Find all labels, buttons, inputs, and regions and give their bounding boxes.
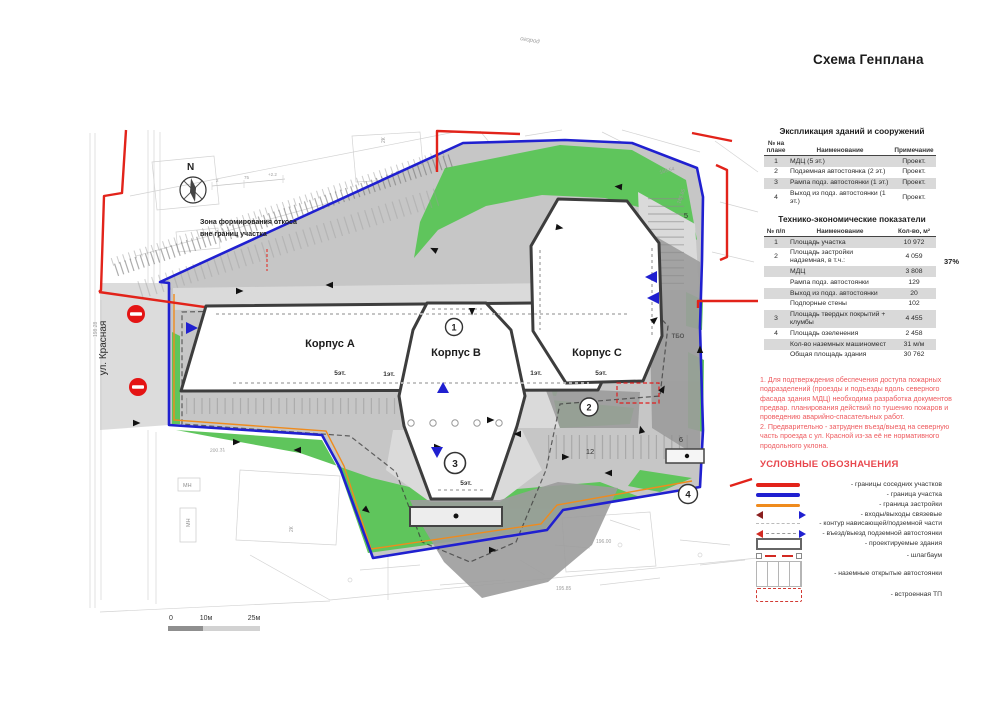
cell-qty: 20 [892,288,936,299]
cell-name: Выход из подз. автостоянки [788,288,892,299]
legend-row: - шлагбаум [756,551,942,560]
garage-entry-icon [756,530,763,538]
cell-note: Проект. [892,178,936,189]
note-2: 2. Предварительно - затруднен въезд/выез… [760,423,966,451]
table-row: 3 Рампа подз. автостоянки (1 эт.) Проект… [764,178,936,189]
survey-label: 198.28 [93,321,99,337]
legend-row: - встроенная ТП [756,588,942,601]
cell-num: 3 [764,178,788,189]
tbo-label: ТБО [672,334,685,340]
cell-num [764,266,788,277]
survey-label: огород [520,36,541,45]
legend-label: - шлагбаум [806,552,942,559]
cell-num: 4 [764,189,788,208]
cell-num: 2 [764,248,788,267]
legend-row: - проектируемые здания [756,538,942,550]
neighbour-boundary-swatch [756,483,800,487]
building-b-label: Корпус B [431,347,481,359]
cell-num [764,288,788,299]
area-number-5: 5 [684,211,688,220]
survey-label: 2К [381,137,387,143]
cell-num: 4 [764,328,788,339]
cell-qty: 30 762 [892,350,936,361]
entry-arrow-icon [799,511,806,519]
legend-label: - въезд/выезд подземной автостоянки [806,530,942,537]
page-title: Схема Генплана [813,52,924,67]
floors-label: 5эт. [460,480,472,487]
legend-row: - границы соседних участков [756,481,942,489]
no-entry-icon [129,378,147,396]
cell-note: Проект. [892,156,936,167]
legend-label: - контур нависающей/подземной части [806,520,942,527]
table-row: 1 МДЦ (5 эт.) Проект. [764,156,936,167]
legend-row: - въезд/выезд подземной автостоянки [756,529,942,538]
no-entry-icon [127,305,145,323]
build-boundary-swatch [756,504,800,507]
tp-swatch [756,588,802,602]
legend-row: - граница участка [756,491,942,499]
cell-qty: 4 059 [892,248,936,267]
cell-num: 2 [764,167,788,178]
table-row: 1 Площадь участка 10 972 [764,237,936,248]
survey-label: 195.85 [556,586,572,592]
legend-label: - проектируемые здания [806,540,942,547]
cell-name: МДЦ [788,266,892,277]
table-row: Подпорные стены 102 [764,299,936,310]
cell-num [764,339,788,350]
projected-building-swatch [756,538,802,550]
genplan-sheet: N Корпус A Корпус B Корпус C 5эт. 1эт. 1… [0,0,1000,707]
cell-qty: 129 [892,277,936,288]
cell-name: МДЦ (5 эт.) [788,156,892,167]
indicators-table-block: Технико-экономические показатели № п/п Н… [764,214,940,361]
survey-label: 2К [289,526,295,532]
structure-dot [685,454,689,458]
col-header: № на плане [764,139,788,156]
legend-label: - наземные открытые автостоянки [806,570,942,577]
explication-table: № на плане Наименование Примечание 1 МДЦ… [764,139,936,207]
floors-label: 1эт. [383,371,395,378]
marker-3: 3 [452,459,458,470]
cell-name: Кол-во наземных машиномест [788,339,892,350]
area-number-6: 6 [679,435,683,444]
survey-label: 200.31 [210,447,226,454]
garage-entry-icon [799,530,806,538]
cell-qty: 10 972 [892,237,936,248]
cell-qty: 4 455 [892,310,936,329]
north-compass: N [180,162,206,203]
scale-tick-25: 25м [248,615,261,622]
cell-qty: 2 458 [892,328,936,339]
table-row: 2 Подземная автостоянка (2 эт.) Проект. [764,167,936,178]
indicators-title: Технико-экономические показатели [764,214,940,224]
cell-qty: 3 808 [892,266,936,277]
legend-label: - встроенная ТП [806,591,942,598]
cell-name: Рампа подз. автостоянки (1 эт.) [788,178,892,189]
north-label: N [187,162,194,173]
area-number-12: 12 [586,447,594,456]
floors-label: 5эт. [334,370,346,377]
cell-name: Общая площадь здания [788,350,892,361]
survey-label: МН [186,518,192,527]
col-header: Наименование [788,227,892,237]
entry-arrow-icon [756,511,763,519]
col-header: Наименование [788,139,892,156]
slope-zone-note: Зона формирования откоса [200,219,297,226]
col-header: Примечание [892,139,936,156]
cell-num: 3 [764,310,788,329]
barrier-arm-icon [765,555,776,557]
scale-bar-dark [168,626,203,631]
barrier-post-icon [756,553,762,559]
explication-table-block: Экспликация зданий и сооружений № на пла… [764,126,940,207]
cell-name: Подпорные стены [788,299,892,310]
cell-qty: 102 [892,299,936,310]
cell-name: Площадь участка [788,237,892,248]
table-row: Выход из подз. автостоянки 20 [764,288,936,299]
floors-label: 5эт. [595,370,607,377]
cell-name: Площадь застройки надземная, в т.ч.: [788,248,892,267]
scale-bar: 0 10м 25м [168,615,260,631]
overhang-contour-swatch [756,523,800,524]
scale-bar-light [203,626,260,631]
table-row: 3 Площадь твердых покрытий + клумбы 4 45… [764,310,936,329]
cell-note: Проект. [892,189,936,208]
fire-access-notes: 1. Для подтверждения обеспечения доступа… [760,376,966,451]
cell-name: Рампа подз. автостоянки [788,277,892,288]
indicators-table: № п/п Наименование Кол-во, м² 1 Площадь … [764,227,936,361]
open-parking-swatch [756,561,802,587]
cell-name: Выход из подз. автостоянки (1 эт.) [788,189,892,208]
cell-num: 1 [764,156,788,167]
cell-name: Площадь озеленения [788,328,892,339]
cell-num [764,299,788,310]
building-c-label: Корпус C [572,347,622,359]
scale-tick-0: 0 [169,615,173,622]
table-row: 4 Площадь озеленения 2 458 [764,328,936,339]
legend-label: - границы соседних участков [806,481,942,488]
cell-num: 1 [764,237,788,248]
pavilion-dot [454,514,459,519]
legend-title: УСЛОВНЫЕ ОБОЗНАЧЕНИЯ [760,459,899,470]
legend-row: - контур нависающей/подземной части [756,519,942,528]
barrier-arm-icon [782,555,793,557]
table-row: Кол-во наземных машиномест 31 м/м [764,339,936,350]
marker-2: 2 [586,403,591,413]
table-row: 2 Площадь застройки надземная, в т.ч.: 4… [764,248,936,267]
col-header: № п/п [764,227,788,237]
cell-num [764,350,788,361]
street-label: ул. Красная [98,321,109,376]
cell-name: Площадь твердых покрытий + клумбы [788,310,892,329]
survey-label: 75 [244,175,250,180]
legend-label: - граница участка [806,491,942,498]
built-up-percent: 37% [944,257,959,266]
garage-entry-dash [766,533,796,534]
survey-label: МН [183,483,192,489]
site-boundary-swatch [756,493,800,497]
legend-row: - граница застройки [756,501,942,509]
cell-qty: 31 м/м [892,339,936,350]
table-row: Рампа подз. автостоянки 129 [764,277,936,288]
cell-name: Подземная автостоянка (2 эт.) [788,167,892,178]
table-row: Общая площадь здания 30 762 [764,350,936,361]
street-pavement [100,283,169,430]
slope-zone-note: вне границ участка [200,231,267,238]
floors-label: 1эт. [530,370,542,377]
legend-row: - входы/выходы связевые [756,510,942,519]
note-1: 1. Для подтверждения обеспечения доступа… [760,376,966,423]
scale-tick-10: 10м [200,615,213,622]
building-a-label: Корпус A [305,338,355,350]
legend-row: - наземные открытые автостоянки [756,561,942,587]
cell-note: Проект. [892,167,936,178]
explication-title: Экспликация зданий и сооружений [764,126,940,136]
survey-label: +2.2 [268,172,277,177]
marker-4: 4 [685,490,691,501]
table-row: МДЦ 3 808 [764,266,936,277]
barrier-post-icon [796,553,802,559]
marker-1: 1 [451,323,456,333]
legend-label: - входы/выходы связевые [806,511,942,518]
survey-label: 196.00 [596,539,612,545]
col-header: Кол-во, м² [892,227,936,237]
table-row: 4 Выход из подз. автостоянки (1 эт.) Про… [764,189,936,208]
cell-num [764,277,788,288]
legend-label: - граница застройки [806,501,942,508]
